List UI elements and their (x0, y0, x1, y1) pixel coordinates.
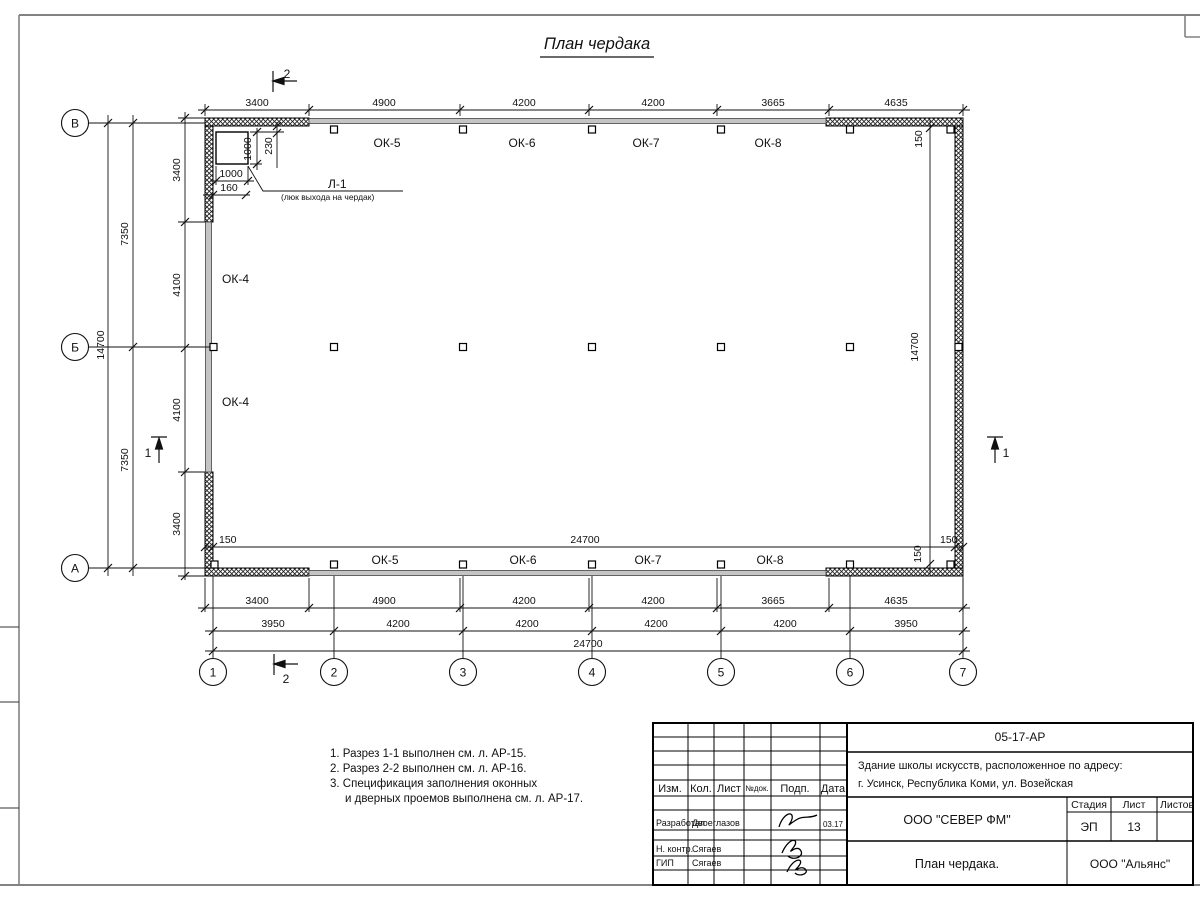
dim-left-inner: 4100 (171, 273, 183, 297)
dim-value: 3950 (894, 618, 918, 630)
column-marker (718, 344, 725, 351)
dim-interior-150-left: 150 (219, 534, 237, 546)
window-label-bottom: ОК-8 (757, 553, 784, 567)
column-marker (589, 561, 596, 568)
tb-gip-name: Сягаев (692, 858, 721, 868)
window-label-top: ОК-8 (755, 136, 782, 150)
window-band-top (309, 119, 826, 124)
note-line: 1. Разрез 1-1 выполнен см. л. АР-15. (330, 748, 527, 760)
column-marker (947, 561, 954, 568)
dim-value: 4200 (386, 618, 410, 630)
drawing-sheet: План чердака (0, 0, 1200, 900)
axis-label: 5 (718, 666, 725, 680)
note-line: и дверных проемов выполнена см. л. АР-17… (345, 793, 583, 805)
dim-interior-height: 14700 (909, 332, 921, 361)
dim-left-half: 7350 (119, 448, 131, 472)
dim-value: 4200 (773, 618, 797, 630)
section-1-right-arrow (992, 438, 999, 449)
hatch-dim-offset-top: 230 (263, 137, 275, 155)
dim-interior-wall-top-150: 150 (913, 130, 925, 148)
tb-sheet-value: 13 (1127, 820, 1141, 834)
tb-col-list: Лист (717, 783, 741, 795)
dim-left-total: 14700 (95, 330, 107, 359)
tb-ncontrol-name: Сягаев (692, 844, 721, 854)
attic-plan-drawing: План чердака (0, 0, 1200, 900)
tb-ncontrol-label: Н. контр. (656, 844, 693, 854)
hatch-detail: 1000 230 1000 160 Л-1 (люк выхода на чер… (203, 122, 403, 202)
tb-col-data: Дата (821, 783, 846, 795)
axis-label: 3 (460, 666, 467, 680)
axis-label: 2 (331, 666, 338, 680)
column-marker (460, 344, 467, 351)
dim-value: 4900 (372, 97, 396, 109)
dim-left-inner: 4100 (171, 398, 183, 422)
section-2-top-label: 2 (284, 67, 291, 81)
dim-value: 3665 (761, 595, 785, 607)
window-label-bottom: ОК-7 (635, 553, 662, 567)
wall-bottom-right-segment (826, 568, 963, 576)
section-2-bottom-arrow (274, 661, 285, 668)
axis-label: 7 (960, 666, 967, 680)
sheet-frame (0, 15, 1200, 885)
axis-label: Б (71, 341, 79, 355)
dim-value: 3400 (245, 595, 269, 607)
frame-left-margin-ticks (0, 627, 19, 808)
tb-col-izm: Изм. (658, 783, 682, 795)
wall-window-label-lower: ОК-4 (222, 395, 249, 409)
tb-stage-label: Стадия (1071, 799, 1107, 811)
column-marker (331, 561, 338, 568)
column-marker (847, 561, 854, 568)
wall-left-lower-segment (205, 472, 213, 568)
dim-interior-width: 24700 (570, 534, 599, 546)
column-marker (460, 126, 467, 133)
notes: 1. Разрез 1-1 выполнен см. л. АР-15. 2. … (330, 748, 583, 805)
signatures (779, 814, 817, 875)
drawing-title: План чердака (540, 35, 654, 57)
dim-value: 3950 (261, 618, 285, 630)
wall-top-right-segment (826, 118, 963, 126)
column-marker (718, 561, 725, 568)
dim-interior-150-right: 150 (940, 534, 958, 546)
page-title: План чердака (544, 35, 650, 53)
dim-value: 4200 (641, 595, 665, 607)
tb-doc-number: 05-17-АР (995, 730, 1046, 744)
dim-value: 4200 (641, 97, 665, 109)
tb-company: ООО "СЕВЕР ФМ" (903, 813, 1010, 827)
window-label-top: ОК-5 (374, 136, 401, 150)
column-marker (211, 561, 218, 568)
column-marker (460, 561, 467, 568)
tb-drawing-title: План чердака. (915, 857, 999, 871)
wall-top-left-segment (205, 118, 309, 126)
hatch-leader-line (248, 166, 403, 191)
note-line: 2. Разрез 2-2 выполнен см. л. АР-16. (330, 763, 527, 775)
section-2-top-arrow (273, 78, 284, 85)
tb-org: ООО "Альянс" (1090, 857, 1170, 871)
tb-col-kol: Кол. (690, 783, 712, 795)
axis-label: 1 (210, 666, 217, 680)
frame-topright-box (1185, 15, 1200, 37)
wall-bottom-left-segment (205, 568, 309, 576)
tb-developed-name: Двоеглазов (692, 818, 740, 828)
dim-interior-wall-bottom-150: 150 (912, 545, 924, 563)
column-marker (331, 126, 338, 133)
tb-gip-label: ГИП (656, 858, 674, 868)
section-marks: 2 2 1 1 (145, 67, 1010, 686)
title-block: Изм. Кол. Лист №док. Подп. Дата Разработ… (653, 723, 1194, 885)
dim-value: 4635 (884, 595, 908, 607)
hatch-dim-height: 1000 (242, 137, 254, 161)
section-1-left-arrow (156, 438, 163, 449)
dim-extensions-row1 (205, 578, 963, 612)
section-1-left-label: 1 (145, 446, 152, 460)
tb-developed-date: 03.17 (823, 820, 844, 829)
axis-label: 4 (589, 666, 596, 680)
hatch-dim-offset-left: 160 (220, 182, 238, 194)
column-marker (847, 344, 854, 351)
dim-left-inner: 3400 (171, 158, 183, 182)
wall-window-label-upper: ОК-4 (222, 272, 249, 286)
tb-sheets-label: Листов (1160, 799, 1195, 811)
tb-col-podp: Подп. (780, 783, 809, 795)
tb-sheet-label: Лист (1123, 799, 1146, 811)
signature-developed (779, 814, 817, 827)
wall-left-upper-segment (205, 126, 213, 222)
dim-value: 4200 (512, 97, 536, 109)
hatch-dim-width: 1000 (219, 168, 243, 180)
window-label-top: ОК-7 (633, 136, 660, 150)
column-marker (718, 126, 725, 133)
hatch-label: Л-1 (328, 177, 347, 191)
tb-project-line2: г. Усинск, Республика Коми, ул. Возейска… (858, 778, 1073, 790)
axis-label: В (71, 117, 79, 131)
column-marker (947, 126, 954, 133)
column-marker (955, 344, 962, 351)
dim-value: 4900 (372, 595, 396, 607)
dim-left-half: 7350 (119, 222, 131, 246)
axis-label: 6 (847, 666, 854, 680)
dim-value: 4635 (884, 97, 908, 109)
section-1-right-label: 1 (1003, 446, 1010, 460)
tb-project-line1: Здание школы искусств, расположенное по … (858, 760, 1123, 772)
section-2-bottom-label: 2 (283, 672, 290, 686)
window-label-bottom: ОК-5 (372, 553, 399, 567)
column-marker (210, 344, 217, 351)
column-marker (847, 126, 854, 133)
dim-value: 4200 (644, 618, 668, 630)
window-label-bottom: ОК-6 (510, 553, 537, 567)
column-marker (589, 126, 596, 133)
dim-value: 4200 (512, 595, 536, 607)
column-marker (331, 344, 338, 351)
column-marker (589, 344, 596, 351)
window-band-bottom (309, 571, 826, 576)
hatch-sublabel: (люк выхода на чердак) (281, 192, 374, 202)
note-line: 3. Спецификация заполнения оконных (330, 778, 537, 790)
window-label-top: ОК-6 (509, 136, 536, 150)
dimensions-left: 14700 7350 7350 3400 4100 4100 3400 (95, 112, 205, 580)
dim-value: 4200 (515, 618, 539, 630)
tb-col-ndok: №док. (745, 784, 768, 793)
signature-gip (787, 860, 806, 875)
axis-label: А (71, 562, 79, 576)
dimensions-top: 3400 4900 4200 4200 3665 4635 (198, 97, 970, 116)
tb-stage-value: ЭП (1080, 820, 1097, 834)
dim-left-inner: 3400 (171, 512, 183, 536)
dim-total: 24700 (573, 638, 602, 650)
dim-value: 3665 (761, 97, 785, 109)
dimensions-bottom: 3400 4900 4200 4200 3665 4635 3950 4200 … (198, 578, 970, 655)
dim-value: 3400 (245, 97, 269, 109)
